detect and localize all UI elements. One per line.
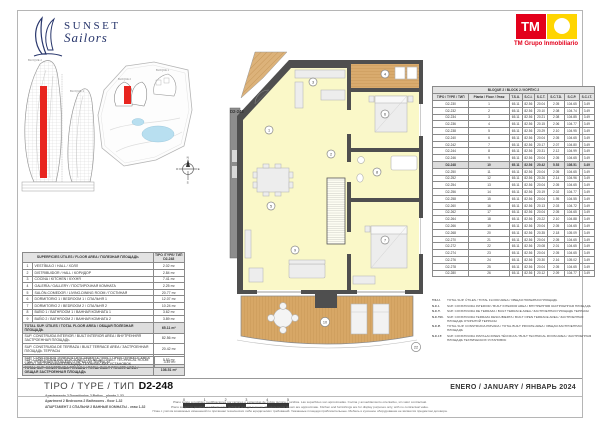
area-row: 3COCINA / KITCHEN / КУХНЯ7.41 m² xyxy=(23,276,185,283)
disclaimer-line: План с учётом возможных изменений по при… xyxy=(60,409,540,414)
room-marker-number: 22 xyxy=(414,345,418,349)
elevation-block2-label: BLOQUE 2 xyxy=(28,58,42,62)
room-marker-number: 6 xyxy=(384,112,386,116)
bedroom1-furniture xyxy=(369,96,413,132)
unit-location-highlight xyxy=(124,86,131,104)
tm-red-square: TM xyxy=(516,14,546,39)
unit-row: D2-2682065.1182.5620.352.18105.093.49 xyxy=(433,229,595,236)
room-marker-number: 10 xyxy=(323,320,327,324)
svg-text:N: N xyxy=(187,156,189,160)
unit-row: D2-2561465.1182.5620.192.02104.773.49 xyxy=(433,189,595,196)
unit-row: D2-2782565.1182.5620.042.05104.653.49 xyxy=(433,263,595,270)
area-summary-row: SUP. CONSTRUIDA INTERIOR / BUILT INTERIO… xyxy=(23,333,185,344)
unit-row: D2-232265.1182.5620.102.08104.743.49 xyxy=(433,107,595,114)
unit-stack-highlight xyxy=(40,86,47,178)
units-col-header: Planta / Floor / Этаж xyxy=(469,94,509,101)
siteplan-block2-label: BLOQUE 2 xyxy=(118,77,132,81)
area-summary-row: TOTAL SUP. ÚTILES / TOTAL FLOOR AREA / О… xyxy=(23,322,185,333)
window-bedroom1 xyxy=(419,104,423,136)
legend-item: S.C.I.T.SUP. CONSTRUIDA INSTALACIONES TÉ… xyxy=(432,334,595,342)
room-marker-number: 7 xyxy=(384,238,386,242)
unit-row: D2-2581565.1182.5620.041.95104.553.49 xyxy=(433,195,595,202)
unit-row: D2-240665.1182.5620.042.05104.653.49 xyxy=(433,134,595,141)
room-marker-number: 9 xyxy=(294,248,296,252)
compass-icon: N S E O xyxy=(176,156,200,184)
units-col-header: S.C.I.T. xyxy=(579,94,594,101)
unit-row: D2-2621765.1182.5620.042.05104.653.49 xyxy=(433,209,595,216)
tm-logo: TM TM Grupo Inmobiliario xyxy=(510,14,582,47)
siteplan-block1-label: BLOQUE 1 xyxy=(156,68,170,72)
area-summary-row: SUP. CONSTRUIDA DE TERRAZA / BUILT TERRA… xyxy=(23,344,185,355)
room-marker-number: 5 xyxy=(270,204,272,208)
tm-yellow-square xyxy=(547,14,577,39)
area-row: 2DISTRIBUIDOR / HALL / КОРИДОР2.84 m² xyxy=(23,270,185,277)
unit-row: D2-2501165.1182.5620.042.05104.653.49 xyxy=(433,168,595,175)
area-row: 7DORMITORIO 2 / BEDROOM 2 / СПАЛЬНЯ 210.… xyxy=(23,303,185,310)
room-marker-number: 3 xyxy=(312,80,314,84)
plan-sheet: SUNSET Sailors TM TM Grupo Inmobiliario … xyxy=(0,0,600,425)
room-marker-number: 8 xyxy=(376,170,378,174)
floor-plan: D2-248 1234567891022 xyxy=(229,50,425,354)
units-col-header: S.C.T. xyxy=(535,94,548,101)
window-bedroom2 xyxy=(419,218,423,254)
units-table: BLOQUE 2 / BLOCK 2 / КОРПУС 2TIPO / TYPE… xyxy=(432,86,595,277)
legend-item: S.C.T.D.SUP. CONSTRUIDA TERRAZA DESCUBIE… xyxy=(432,315,595,323)
washer xyxy=(395,67,405,79)
unit-row: D2-2722265.1182.5620.082.01104.653.49 xyxy=(433,243,595,250)
unit-row: D2-234365.1182.5620.212.08104.853.49 xyxy=(433,114,595,121)
svg-text:O: O xyxy=(176,167,179,171)
room-marker-number: 4 xyxy=(384,72,386,76)
pool-shape-small xyxy=(132,119,144,126)
tower-elevations: BLOQUE 2 BLOQUE 1 xyxy=(20,56,96,192)
terrace-pillar xyxy=(315,294,337,308)
area-row: 1VESTÍBULO / HALL / ХОЛЛ2.02 m² xyxy=(23,263,185,270)
unit-row: D2-242765.1182.5620.172.07104.803.49 xyxy=(433,141,595,148)
areas-header-desc: SUPERFICIES ÚTILES / FLOOR AREA / ПОЛЕЗН… xyxy=(23,253,154,263)
room-marker-number: 2 xyxy=(330,152,332,156)
units-col-header: T.S.U. xyxy=(509,94,522,101)
unit-row: D2-2481065.1182.5620.425.53108.513.49 xyxy=(433,162,595,169)
unit-row: D2-2802665.1182.5620.122.09104.773.49 xyxy=(433,270,595,277)
type-code: D2-248 xyxy=(139,380,173,392)
technical-area-table: SUP. CONSTRUIDA INSTALACIONES TÉCNICAS /… xyxy=(22,356,185,368)
areas-header-type: TIPO /TYPE/ ТИПD2-248 xyxy=(153,253,184,263)
legal-disclaimer: Plano sujeto a posibles modificaciones p… xyxy=(60,400,540,414)
sailboat-icon xyxy=(30,16,64,58)
sheet-title-label: TIPO / TYPE / ТИП xyxy=(44,381,135,392)
legend-item: T.S.U.TOTAL SUP. ÚTILES / TOTAL FLOOR AR… xyxy=(432,298,595,302)
legend-item: S.C.T.SUP. CONSTRUIDA DE TERRAZA / BUILT… xyxy=(432,309,595,313)
legend-item: S.C.P.TOTAL SUP. CONSTRUIDA PRIVADA / TO… xyxy=(432,324,595,332)
units-col-header: S.C.P. xyxy=(565,94,579,101)
unit-row: D2-2641865.1182.5620.222.10104.883.49 xyxy=(433,216,595,223)
floorplan-unit-label: D2-248 xyxy=(230,109,244,114)
terrace-slider-2 xyxy=(357,290,405,294)
unit-row: D2-2762465.1182.5620.302.16105.023.49 xyxy=(433,256,595,263)
podium-elevation xyxy=(22,182,94,191)
area-row: 8BAÑO 1 / BATHROOM 1 / ВАННАЯ КОМНАТА 13… xyxy=(23,309,185,316)
units-col-header: S.C.T.D. xyxy=(548,94,565,101)
unit-row: D2-2541365.1182.5620.042.05104.653.49 xyxy=(433,182,595,189)
terrace-slider-1 xyxy=(257,290,301,294)
unit-row: D2-2521265.1182.5620.262.14104.963.49 xyxy=(433,175,595,182)
area-row: 4GALERÍA / GALLERY / ПОСТИРОЧНАЯ КОМНАТА… xyxy=(23,283,185,290)
unit-row: D2-238565.1182.5620.292.10104.953.49 xyxy=(433,128,595,135)
issue-date: ENERO / JANUARY / ЯНВАРЬ 2024 xyxy=(450,384,576,391)
sunset-sailors-logo: SUNSET Sailors xyxy=(30,16,150,58)
tm-caption: TM Grupo Inmobiliario xyxy=(510,41,582,47)
legend-item: S.C.I.SUP. CONSTRUIDA INTERIOR / BUILT I… xyxy=(432,304,595,308)
area-row: 9BAÑO 2 / BATHROOM 2 / ВАННАЯ КОМНАТА 23… xyxy=(23,316,185,323)
logo-line2: Sailors xyxy=(64,30,121,46)
unit-row: D2-2601665.1182.5620.132.03104.723.49 xyxy=(433,202,595,209)
unit-row: D2-246965.1182.5620.042.05104.653.49 xyxy=(433,155,595,162)
area-row: 5SALÓN-COMEDOR / LIVING-DINING ROOM / ГО… xyxy=(23,289,185,296)
room-marker-number: 1 xyxy=(268,128,270,132)
area-row: 6DORMITORIO 1 / BEDROOM 1 / СПАЛЬНЯ 112.… xyxy=(23,296,185,303)
pool-shape xyxy=(142,126,174,142)
disclaimer-divider xyxy=(17,396,582,397)
unit-row: D2-2702165.1182.5620.042.05104.653.49 xyxy=(433,236,595,243)
footer-divider xyxy=(17,378,582,379)
wardrobe xyxy=(327,178,345,244)
dryer xyxy=(407,67,417,79)
sheet-title: TIPO / TYPE / ТИПD2-248 xyxy=(44,380,173,392)
unit-row: D2-230165.1182.5620.042.05104.653.49 xyxy=(433,101,595,108)
unit-row: D2-244865.1182.5620.312.12104.993.49 xyxy=(433,148,595,155)
svg-text:E: E xyxy=(198,167,200,171)
unit-row: D2-2742365.1182.5620.042.05104.653.49 xyxy=(433,250,595,257)
units-table-title: BLOQUE 2 / BLOCK 2 / КОРПУС 2 xyxy=(433,87,595,94)
units-col-header: TIPO / TYPE / ТИП xyxy=(433,94,469,101)
tower-1-elevation xyxy=(68,89,94,182)
units-col-header: S.C.I. xyxy=(522,94,534,101)
technical-area-row: SUP. CONSTRUIDA INSTALACIONES TÉCNICAS /… xyxy=(23,357,185,368)
abbreviation-legend: T.S.U.TOTAL SUP. ÚTILES / TOTAL FLOOR AR… xyxy=(432,298,595,344)
svg-text:S: S xyxy=(187,180,189,184)
unit-row: D2-2661965.1182.5620.042.05104.653.49 xyxy=(433,223,595,230)
tm-circle-icon xyxy=(554,18,570,34)
unit-row: D2-236465.1182.5620.152.06104.773.49 xyxy=(433,121,595,128)
